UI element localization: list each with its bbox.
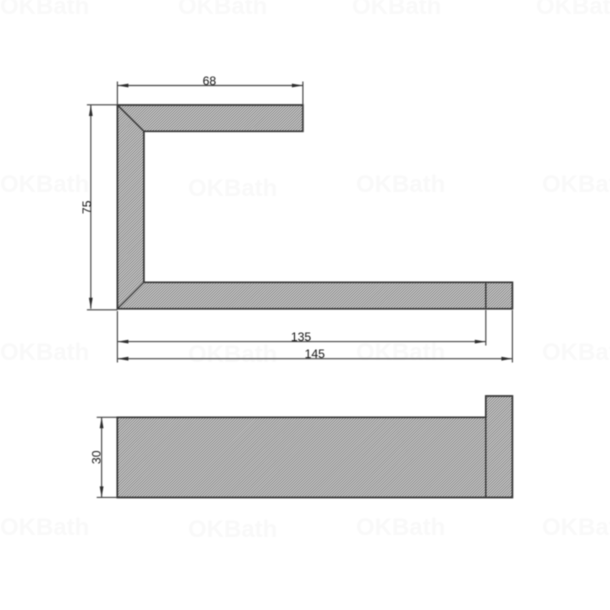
svg-text:OKBath: OKBath [542,339,610,366]
svg-text:145: 145 [305,347,326,361]
svg-text:30: 30 [89,450,103,464]
svg-text:OKBath: OKBath [0,514,89,541]
svg-text:OKBath: OKBath [536,0,610,20]
svg-text:OKBath: OKBath [356,339,445,366]
svg-text:OKBath: OKBath [356,514,445,541]
svg-text:OKBath: OKBath [188,175,277,202]
svg-text:OKBath: OKBath [0,0,89,20]
svg-text:OKBath: OKBath [356,171,445,198]
svg-text:OKBath: OKBath [0,171,89,198]
svg-text:68: 68 [203,74,217,88]
svg-text:75: 75 [80,200,94,214]
svg-text:OKBath: OKBath [0,339,89,366]
svg-text:OKBath: OKBath [178,0,267,20]
svg-text:135: 135 [291,330,312,344]
svg-text:OKBath: OKBath [188,516,277,543]
svg-text:OKBath: OKBath [188,341,277,368]
svg-text:OKBath: OKBath [542,171,610,198]
svg-text:OKBath: OKBath [352,0,441,20]
svg-text:OKBath: OKBath [542,514,610,541]
